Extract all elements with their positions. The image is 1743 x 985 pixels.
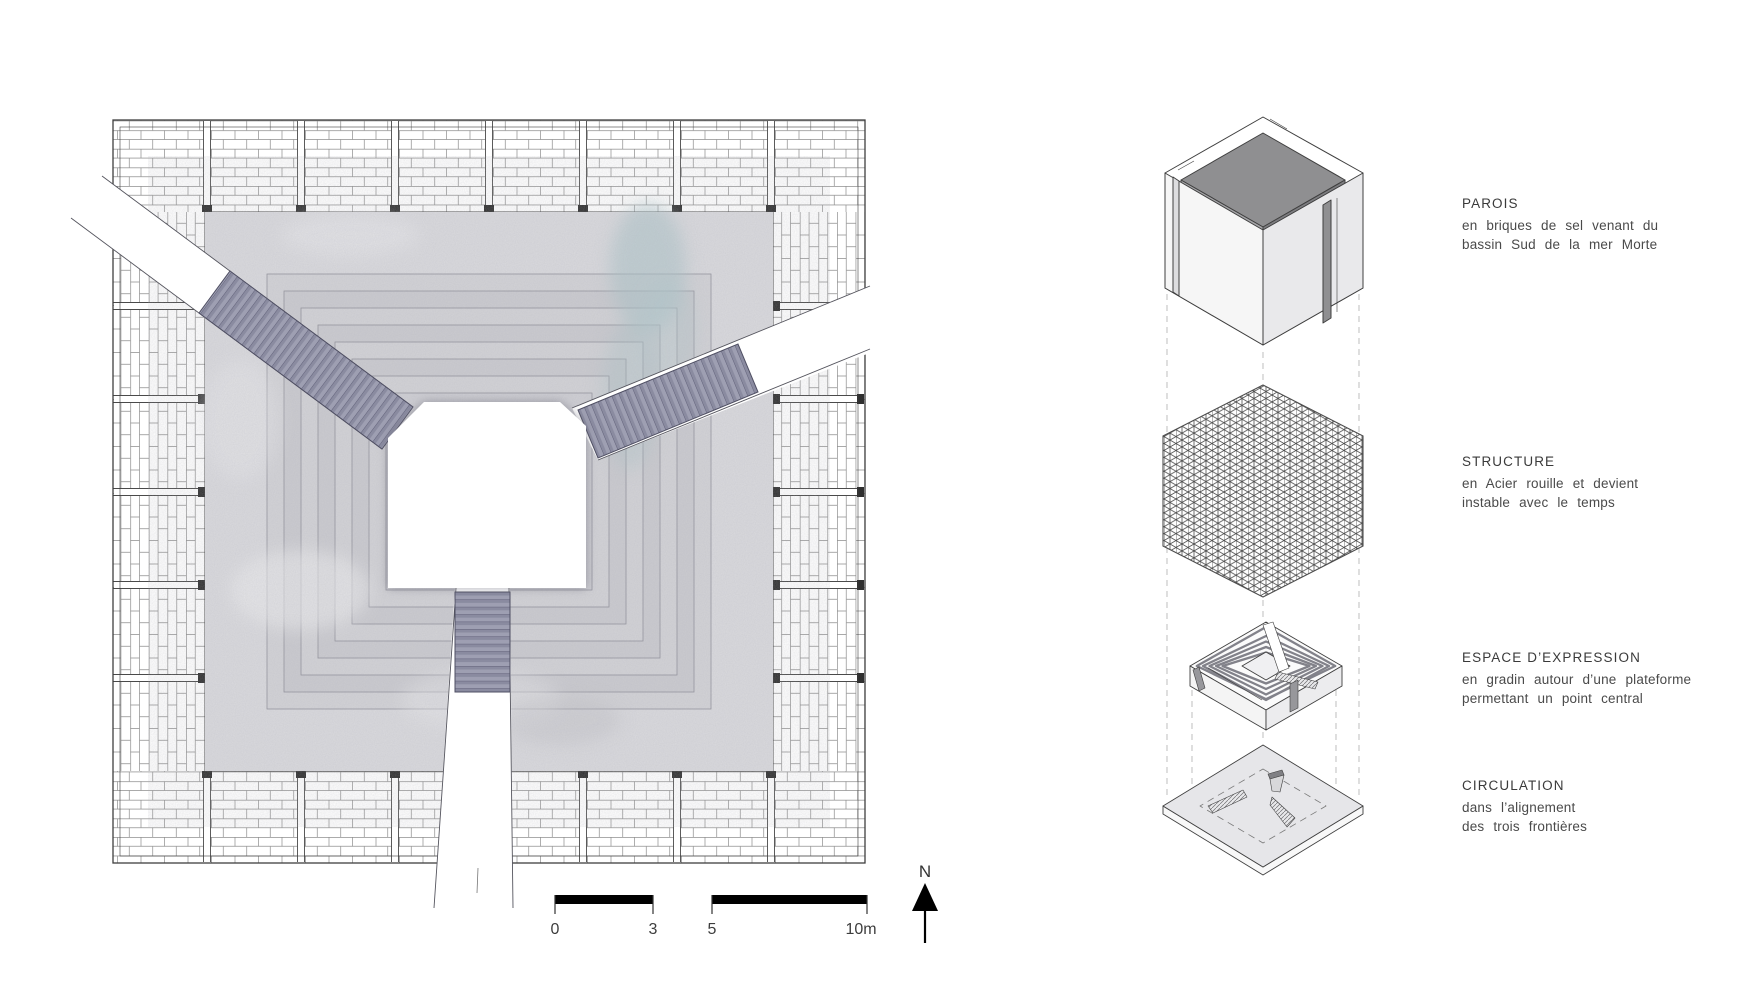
legend-item-circulation: CIRCULATION dans l’alignement des trois … [1462,778,1712,836]
axon-structure [1163,385,1363,597]
legend-line: dans l’alignement [1462,799,1712,818]
floor-plan: 0 3 5 10m N [71,120,938,943]
legend-title: PAROIS [1462,196,1712,211]
legend-line: permettant un point central [1462,690,1712,709]
scale-label-5: 5 [708,921,717,938]
legend-line: des trois frontières [1462,818,1712,837]
scale-label-0: 0 [551,921,560,938]
axon-parois [1165,117,1363,345]
scale-label-10m: 10m [845,921,876,938]
structure-lattice [1163,385,1363,597]
exploded-axon [1163,117,1363,875]
legend-line: en gradin autour d’une plateforme [1462,671,1712,690]
espace-stair-slot-front [1290,680,1298,712]
central-platform [388,402,586,588]
stair-bottom [455,592,510,692]
north-arrow: N [912,862,938,943]
parois-wall-slot [1323,200,1331,323]
architectural-drawing: 0 3 5 10m N [0,0,1743,980]
legend-title: ESPACE D’EXPRESSION [1462,650,1712,665]
legend-item-espace: ESPACE D’EXPRESSION en gradin autour d’u… [1462,650,1712,708]
legend-title: STRUCTURE [1462,454,1712,469]
canvas: { "plan": { "scale_bar": { "labels": ["0… [0,0,1743,980]
scale-label-3: 3 [649,921,658,938]
legend-line: en briques de sel venant du [1462,217,1712,236]
legend-title: CIRCULATION [1462,778,1712,793]
legend-line: en Acier rouille et devient [1462,475,1712,494]
scale-bar: 0 3 5 10m [551,895,877,938]
circulation-slab [1163,745,1363,867]
legend-item-structure: STRUCTURE en Acier rouille et devient in… [1462,454,1712,512]
axon-espace [1190,622,1342,730]
axon-circulation [1163,745,1363,875]
legend-item-parois: PAROIS en briques de sel venant du bassi… [1462,196,1712,254]
north-label: N [919,862,931,881]
legend-line: bassin Sud de la mer Morte [1462,236,1712,255]
legend-line: instable avec le temps [1462,494,1712,513]
parois-corner-slot [1173,177,1179,296]
